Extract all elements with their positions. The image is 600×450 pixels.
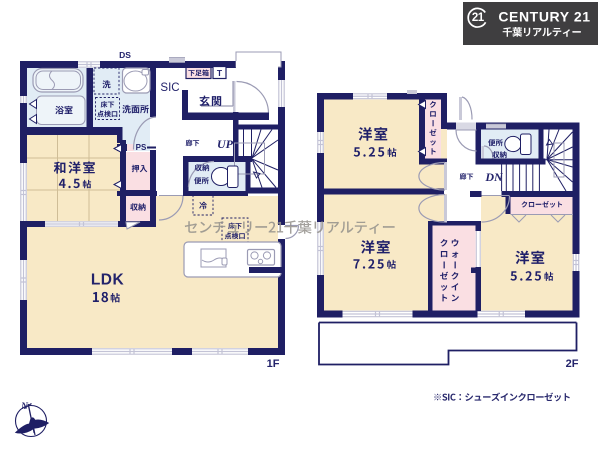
svg-text:N: N [20, 402, 29, 412]
svg-text:LDK: LDK [91, 272, 125, 289]
svg-text:UP: UP [217, 137, 234, 151]
svg-text:DN: DN [484, 170, 504, 184]
svg-text:DS: DS [119, 50, 131, 60]
svg-text:PS: PS [136, 143, 147, 152]
svg-text:2F: 2F [566, 358, 579, 370]
svg-text:CENTURY 21: CENTURY 21 [498, 8, 590, 24]
svg-text:T: T [217, 68, 223, 78]
svg-text:SIC: SIC [160, 82, 179, 94]
svg-text:1F: 1F [267, 358, 280, 370]
svg-text:21: 21 [472, 12, 485, 24]
